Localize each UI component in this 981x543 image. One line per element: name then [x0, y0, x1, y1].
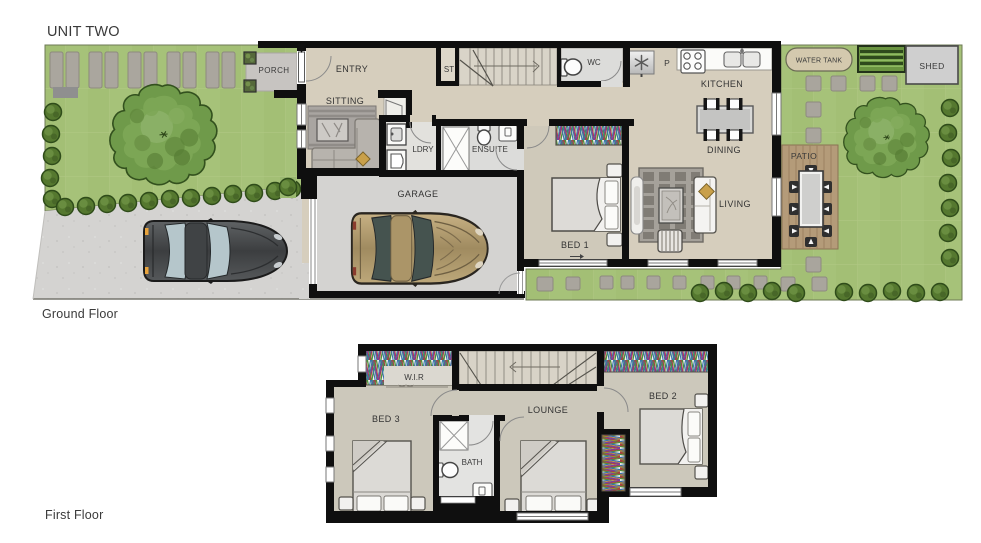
- svg-text:BED 3: BED 3: [372, 414, 400, 424]
- svg-text:ENSUITE: ENSUITE: [472, 145, 508, 154]
- svg-text:First Floor: First Floor: [45, 508, 103, 522]
- svg-text:SHED: SHED: [919, 61, 944, 71]
- svg-text:WATER TANK: WATER TANK: [796, 58, 843, 65]
- svg-text:PATIO: PATIO: [791, 151, 817, 161]
- svg-text:PORCH: PORCH: [259, 66, 290, 75]
- svg-text:ST: ST: [444, 65, 454, 74]
- svg-text:LDRY: LDRY: [412, 145, 434, 154]
- svg-text:P: P: [664, 58, 670, 68]
- svg-text:SITTING: SITTING: [326, 96, 364, 106]
- svg-text:LOUNGE: LOUNGE: [528, 405, 568, 415]
- svg-text:BED 1: BED 1: [561, 240, 589, 250]
- svg-text:LIVING: LIVING: [719, 199, 751, 209]
- svg-text:BED 2: BED 2: [649, 391, 677, 401]
- svg-text:W.I.R: W.I.R: [404, 373, 424, 382]
- svg-text:ENTRY: ENTRY: [336, 64, 368, 74]
- svg-text:Ground Floor: Ground Floor: [42, 307, 118, 321]
- svg-text:KITCHEN: KITCHEN: [701, 79, 743, 89]
- svg-text:BATH: BATH: [462, 458, 483, 467]
- svg-text:WC: WC: [587, 58, 601, 67]
- svg-text:UNIT TWO: UNIT TWO: [47, 24, 120, 40]
- svg-text:DINING: DINING: [707, 145, 741, 155]
- svg-text:GARAGE: GARAGE: [398, 189, 439, 199]
